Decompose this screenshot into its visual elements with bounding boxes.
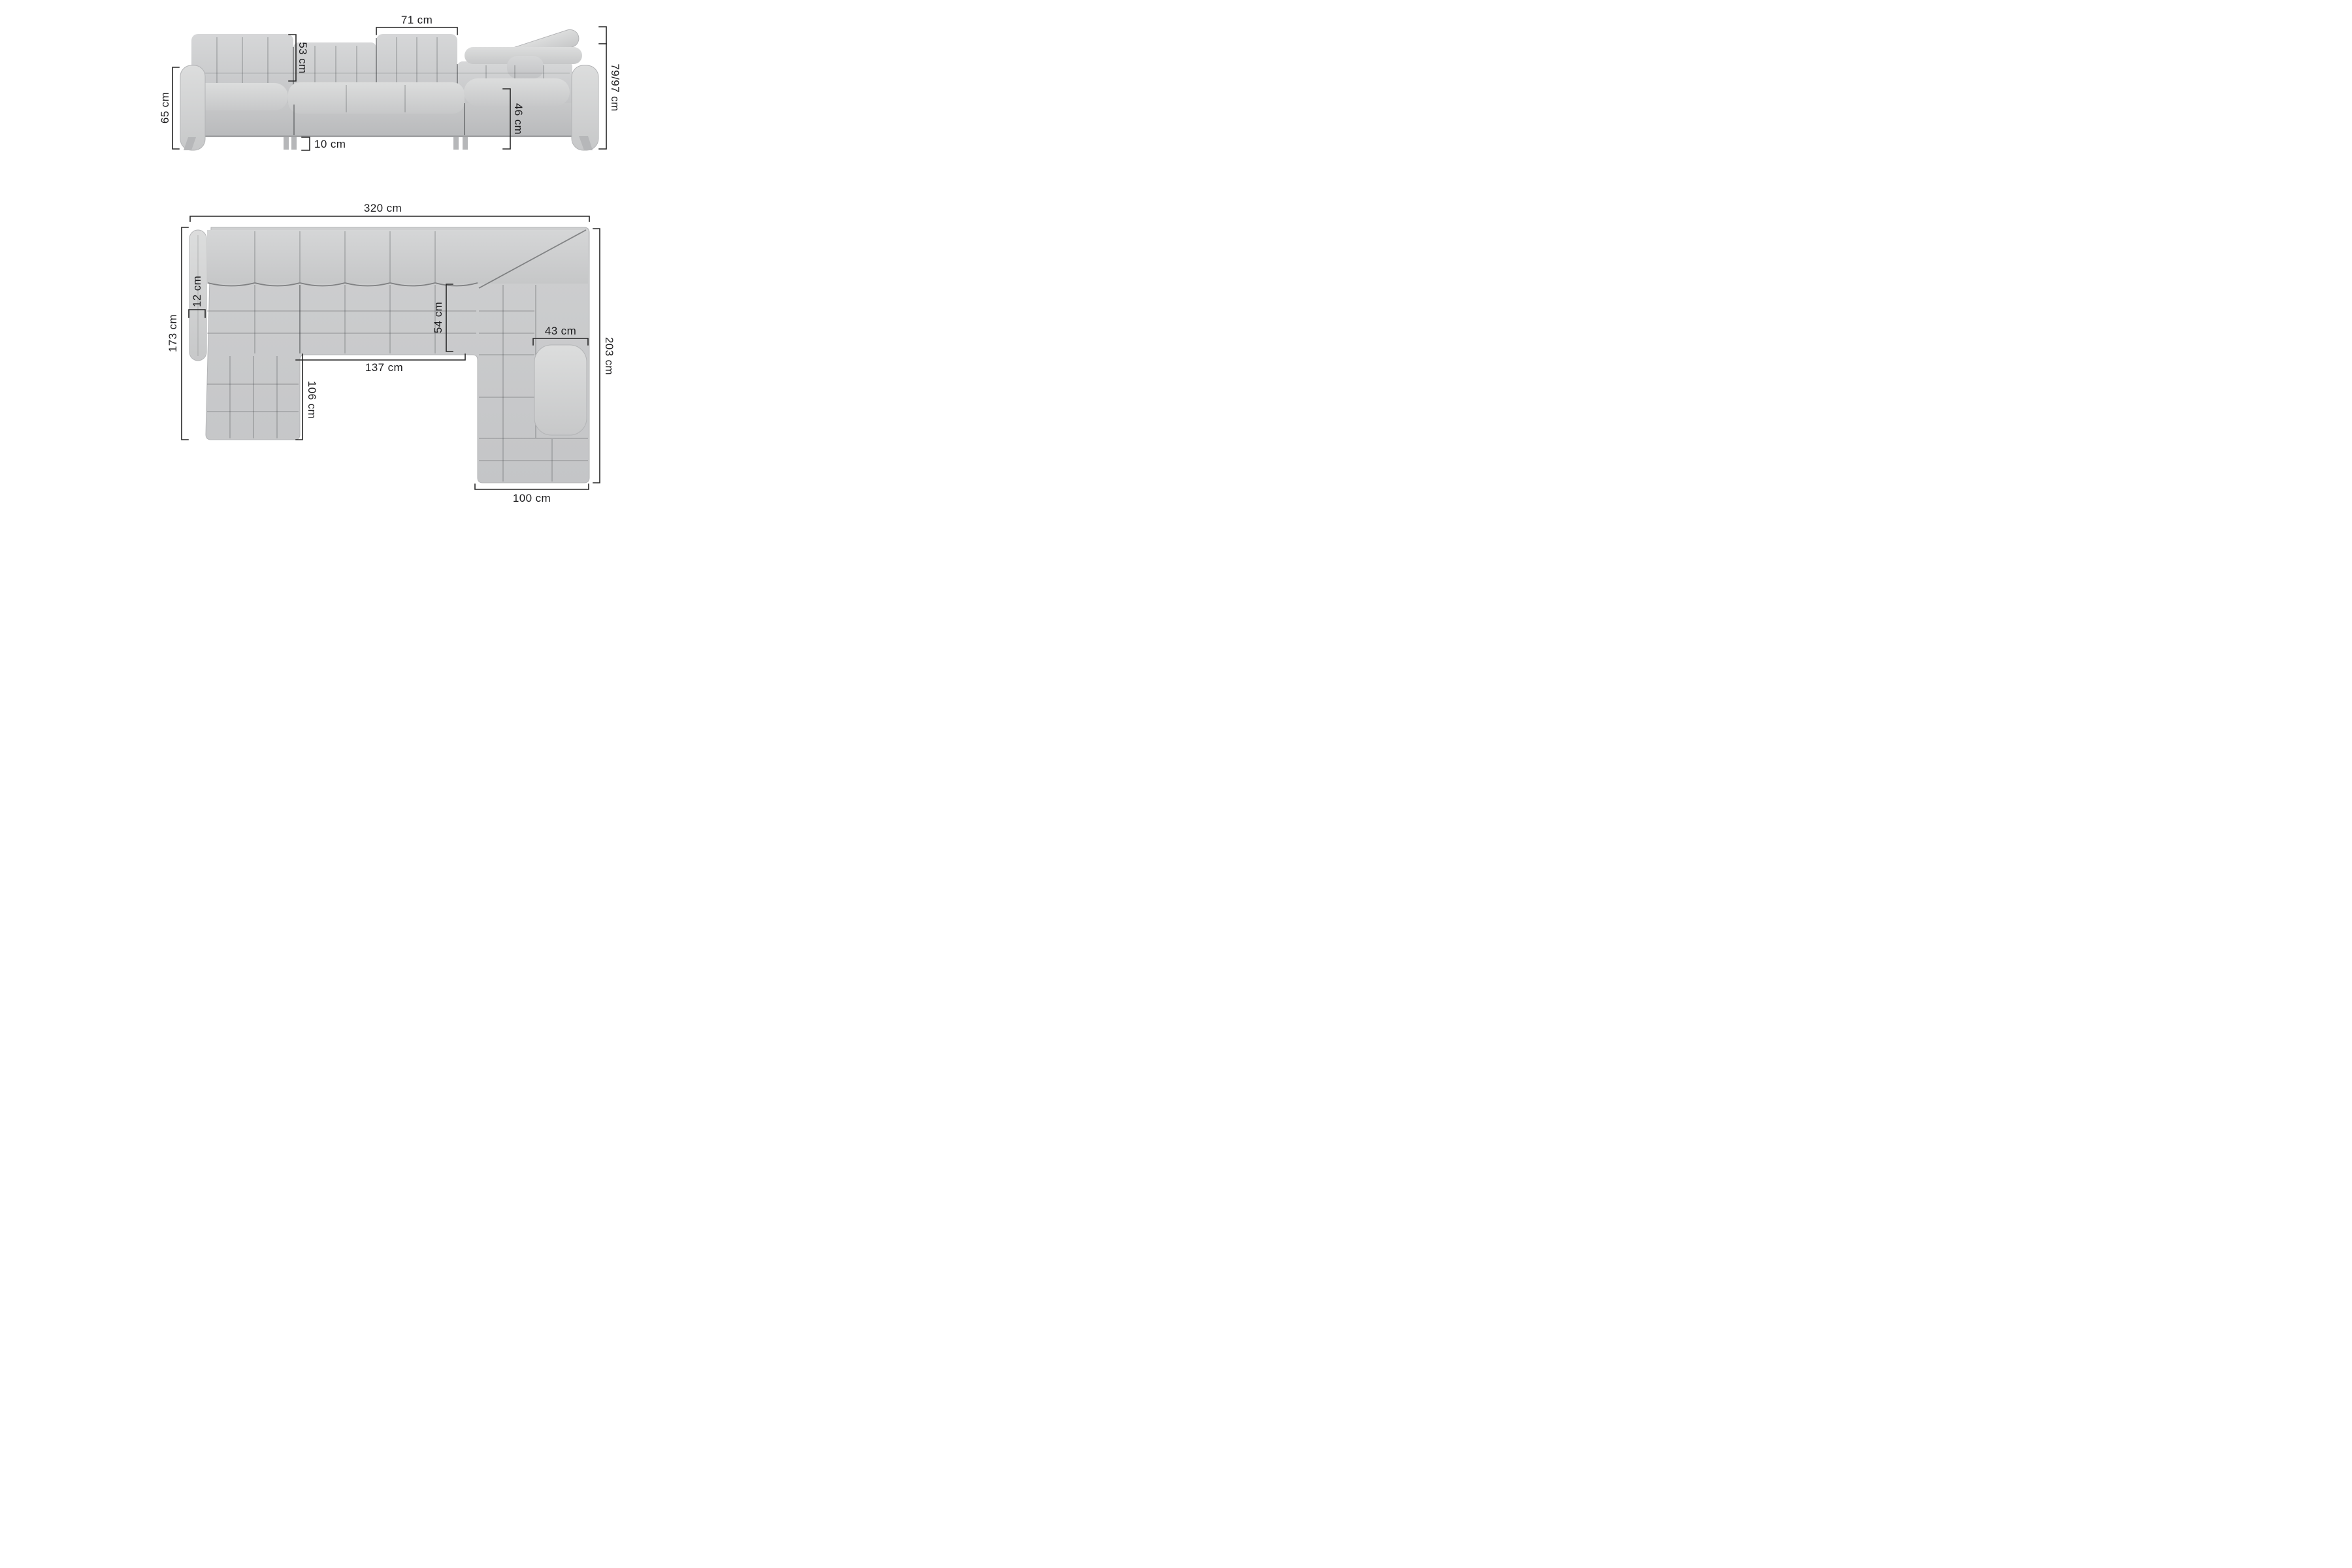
corner-back-cushion (507, 56, 544, 78)
seat-cushions (288, 82, 465, 114)
dim-label-203cm: 203 cm (603, 337, 615, 375)
dim-backrest-section-width: 71 cm (376, 14, 457, 35)
dim-inner-width: 137 cm (302, 354, 465, 374)
plan-right-armrest-pillow (534, 345, 587, 435)
dim-label-173cm: 173 cm (167, 314, 179, 352)
leg-front-mid-left-a (284, 137, 289, 150)
left-armrest-roll (192, 83, 288, 110)
leg-front-mid-right-b (463, 137, 468, 150)
dim-label-79-97cm: 79/97 cm (609, 63, 621, 111)
dim-label-106cm: 106 cm (306, 381, 318, 419)
dim-label-71cm: 71 cm (401, 14, 433, 26)
leg-front-mid-left-b (291, 137, 297, 150)
right-armrest-roll (464, 78, 570, 106)
dim-label-43cm: 43 cm (545, 325, 576, 337)
plan-backrest-band (207, 230, 588, 284)
dim-total-height: 79/97 cm (599, 27, 621, 149)
dim-left-depth: 173 cm (167, 227, 188, 440)
dim-label-100cm: 100 cm (513, 492, 551, 504)
dim-label-320cm: 320 cm (364, 202, 402, 214)
dim-label-46cm: 46 cm (512, 103, 525, 135)
front-view: 71 cm 53 cm 65 cm 79/97 cm 46 cm 10 (159, 14, 621, 150)
sofa-dimension-diagram: 71 cm 53 cm 65 cm 79/97 cm 46 cm 10 (0, 0, 784, 523)
front-legs (184, 136, 593, 150)
dim-right-chaise-width: 100 cm (475, 484, 589, 504)
plan-view: 320 cm 173 cm 12 cm 54 cm 137 cm 106 cm (167, 202, 615, 504)
dim-leg-height: 10 cm (302, 137, 346, 150)
dim-armrest-height: 65 cm (159, 67, 179, 149)
leg-front-mid-right-a (453, 137, 459, 150)
dim-label-137cm: 137 cm (365, 361, 403, 374)
dim-total-depth: 203 cm (593, 229, 615, 483)
dim-label-65cm: 65 cm (159, 92, 171, 123)
dim-label-54cm: 54 cm (432, 302, 444, 333)
dim-label-53cm: 53 cm (297, 42, 309, 73)
diagram-canvas: 71 cm 53 cm 65 cm 79/97 cm 46 cm 10 (0, 0, 784, 523)
dim-label-10cm: 10 cm (314, 138, 346, 150)
dim-total-width: 320 cm (190, 202, 589, 221)
dim-label-12cm: 12 cm (191, 276, 203, 307)
